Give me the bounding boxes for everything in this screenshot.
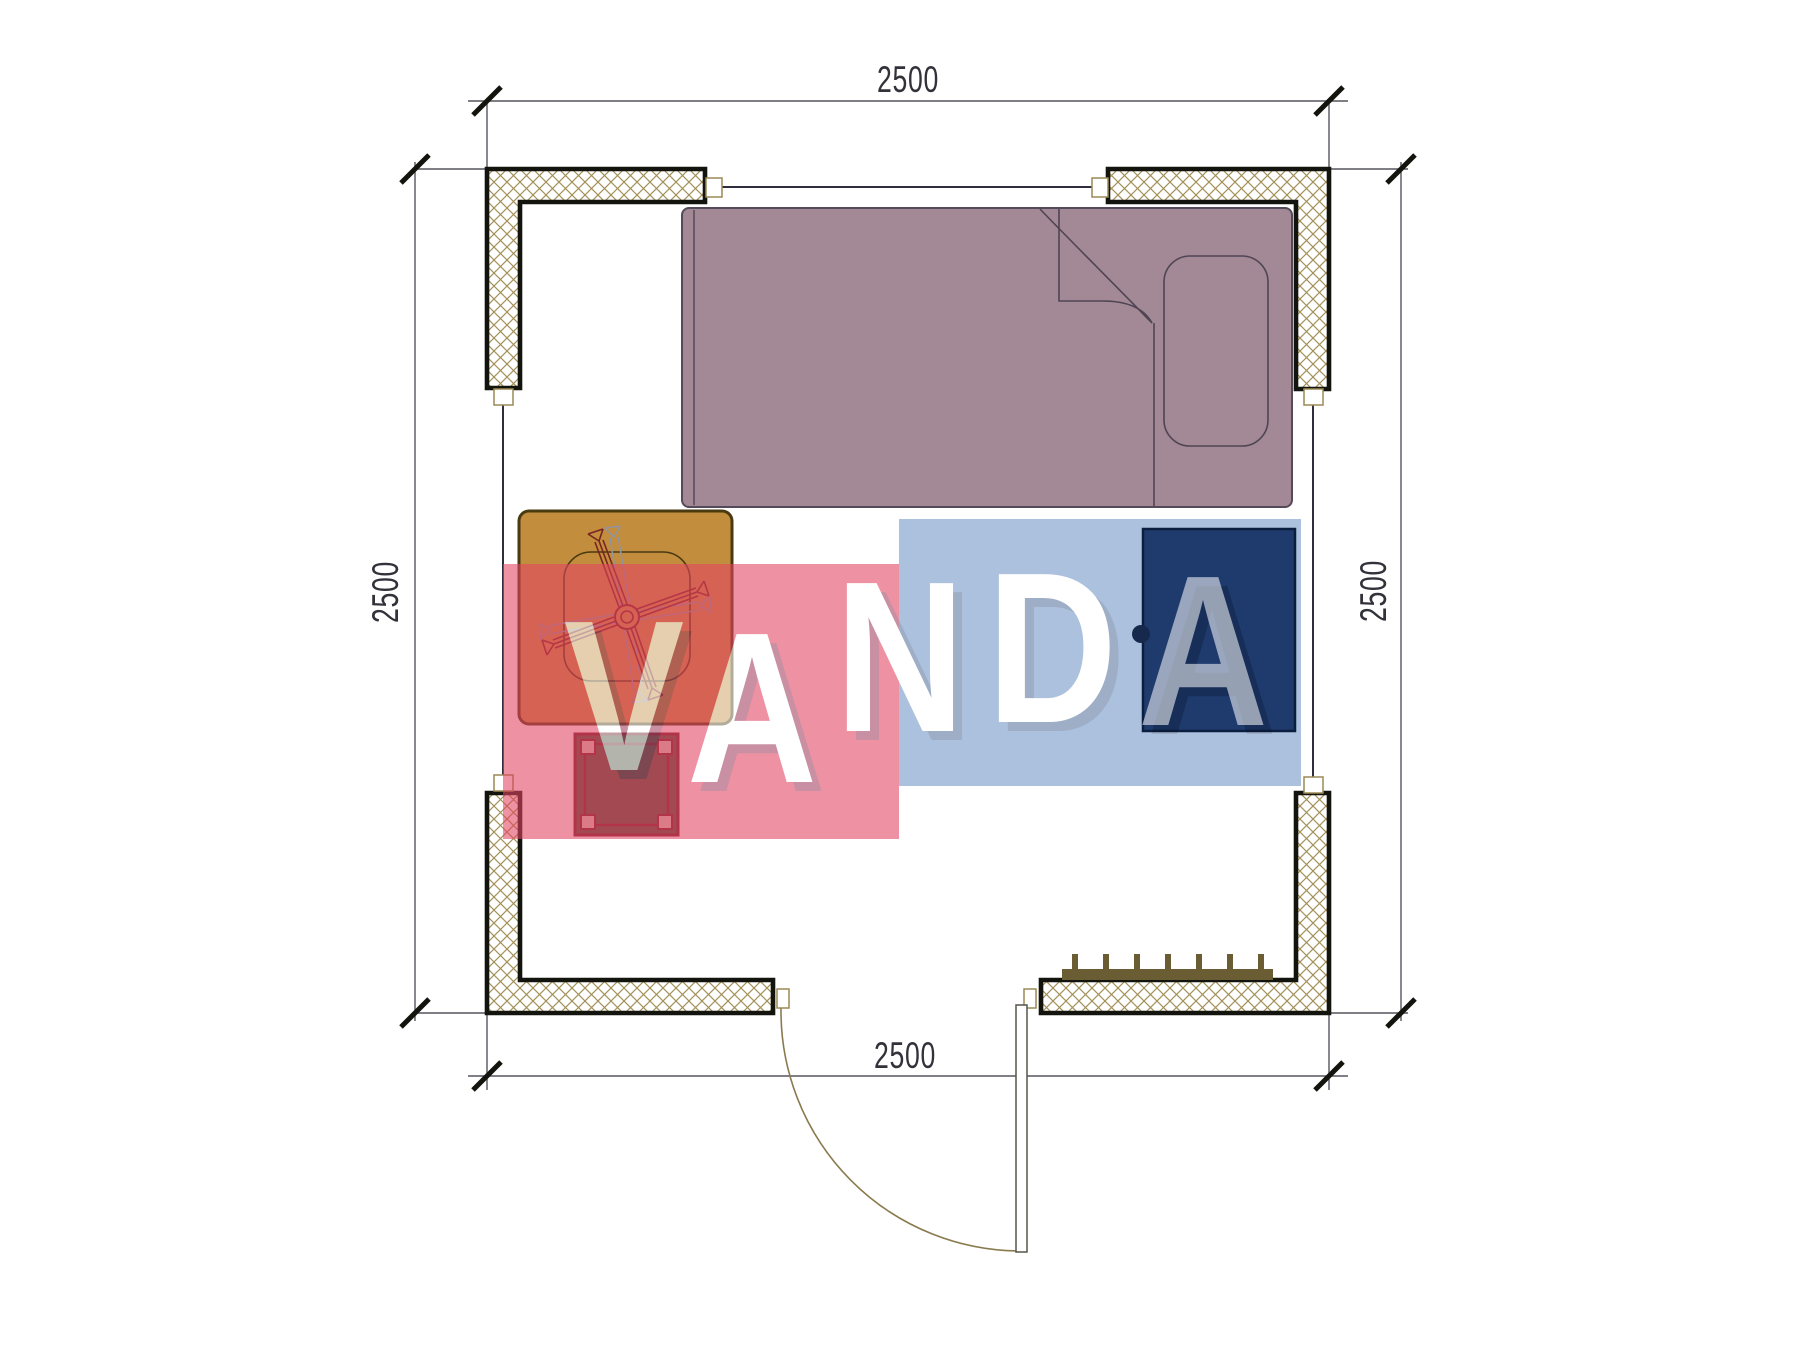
svg-text:2500: 2500: [874, 1035, 936, 1076]
svg-text:D: D: [987, 528, 1117, 768]
svg-text:N: N: [835, 537, 965, 777]
svg-text:2500: 2500: [365, 561, 406, 623]
svg-text:2500: 2500: [1353, 560, 1394, 622]
svg-text:2500: 2500: [877, 59, 939, 100]
svg-text:A: A: [687, 588, 817, 828]
svg-text:V: V: [564, 576, 684, 816]
